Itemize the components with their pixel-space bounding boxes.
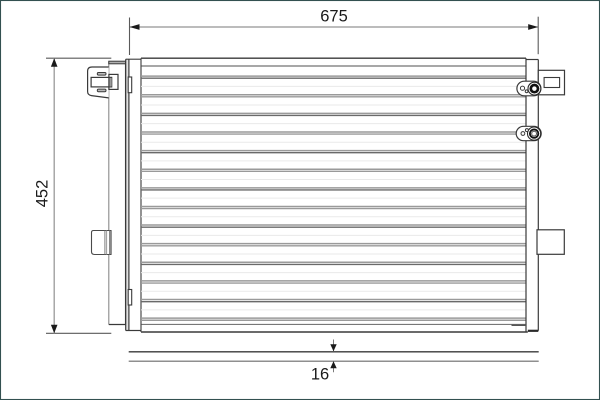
svg-text:16: 16: [311, 366, 329, 384]
svg-text:675: 675: [320, 8, 348, 26]
svg-text:452: 452: [34, 180, 52, 208]
